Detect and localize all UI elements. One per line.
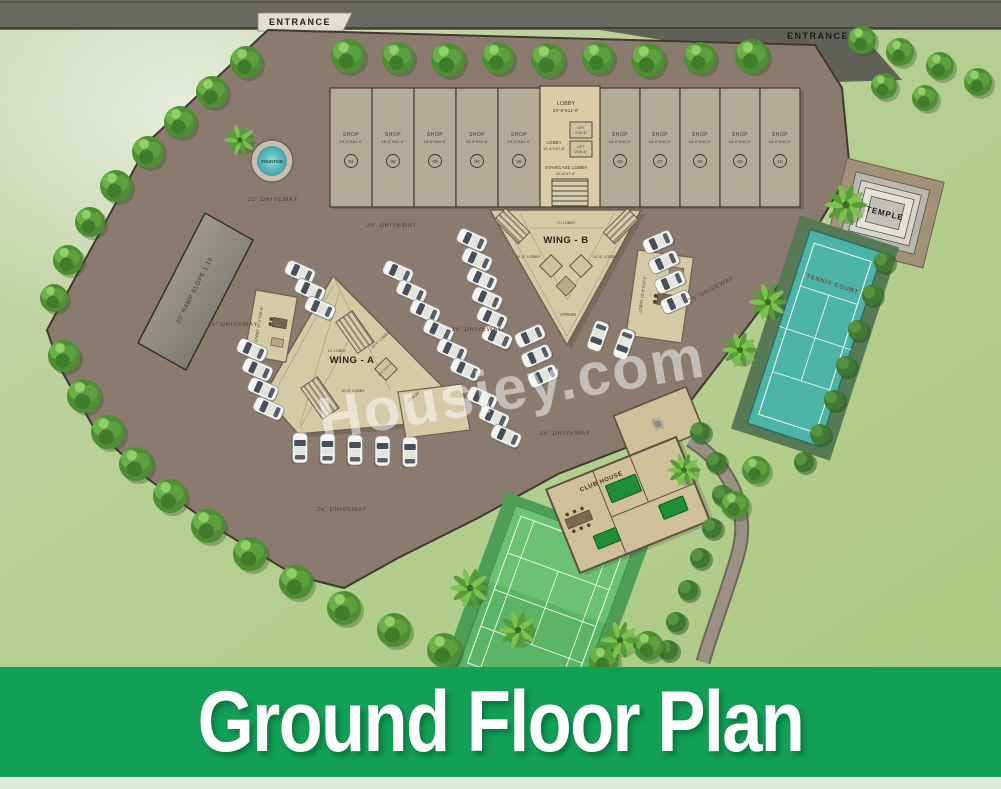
shop-label: SHOP	[427, 132, 443, 138]
shop-unit: SHOP15'-0"X40'-0"10	[760, 88, 800, 207]
lift2-size: 8'X6'-6"	[575, 150, 587, 154]
shop-label: SHOP	[612, 132, 628, 138]
banner-bottom-strip	[0, 777, 1001, 789]
shop-number: 01	[348, 159, 354, 165]
staircase-lobby-label: STAIRCASE LOBBY	[545, 165, 587, 170]
shop-number: 02	[390, 159, 396, 165]
shop-size: 15'-0"X40'-0"	[728, 139, 752, 144]
shop-label: SHOP	[385, 132, 401, 138]
entrance-left: ENTRANCE	[258, 13, 352, 31]
wing-b-to-lobby: TO LOBBY	[557, 221, 576, 225]
shop-number: 06	[617, 159, 623, 165]
driveway-label: 25' DRIVEWAY	[452, 327, 502, 333]
shop-number: 08	[697, 159, 703, 165]
driveway-label: 25' DRIVEWAY	[317, 507, 367, 513]
shop-unit: SHOP15'-0"X40'-0"05	[498, 88, 540, 207]
shop-size: 15'-0"X40'-0"	[381, 139, 405, 144]
shop-size: 15'-0"X40'-0"	[339, 139, 363, 144]
lift1-size: 8'X6'-6"	[575, 131, 587, 135]
shop-label: SHOP	[343, 132, 359, 138]
shop-unit: SHOP15'-0"X40'-0"07	[640, 88, 680, 207]
shop-number: 10	[777, 159, 783, 165]
shop-unit: SHOP15'-0"X40'-0"02	[372, 88, 414, 207]
wing-a-name: WING - A	[330, 355, 375, 366]
shop-unit: SHOP15'-0"X40'-0"09	[720, 88, 760, 207]
car-icon	[292, 433, 308, 464]
shop-label: SHOP	[469, 132, 485, 138]
driveway-label: 25' DRIVEWAY	[208, 322, 258, 328]
shop-size: 15'-0"X40'-0"	[423, 139, 447, 144]
title-banner: Ground Floor Plan	[0, 667, 1001, 777]
table	[272, 317, 287, 328]
lobby-top-size: 20'-6"X11'-0"	[553, 108, 579, 113]
lobby-core: LOBBY 20'-6"X11'-0" LIFT 8'X6'-6" LIFT 8…	[540, 86, 600, 207]
shop-unit: SHOP15'-0"X40'-0"03	[414, 88, 456, 207]
entrance-left-label: ENTRANCE	[269, 17, 331, 27]
wing-b-lobby-left: 10'-6" LOBBY	[516, 254, 541, 259]
shop-label: SHOP	[652, 132, 668, 138]
shop-number: 04	[474, 159, 480, 165]
site-plan: ENTRANCE ENTRANCE 20' RAMP SLOPE 1:10 FO…	[0, 0, 1001, 667]
shop-size: 15'-0"X40'-0"	[648, 139, 672, 144]
shop-unit: SHOP15'-0"X40'-0"04	[456, 88, 498, 207]
shop-unit: SHOP15'-0"X40'-0"01	[330, 88, 372, 207]
entrance-right-label: ENTRANCE	[787, 31, 849, 41]
shops-row: SHOP15'-0"X40'-0"01SHOP15'-0"X40'-0"02SH…	[330, 86, 804, 209]
wing-a-lobby1: 10' LOBBY	[328, 349, 347, 353]
ground-floor-plan-image: ENTRANCE ENTRANCE 20' RAMP SLOPE 1:10 FO…	[0, 0, 1001, 789]
shop-number: 03	[432, 159, 438, 165]
lobby-mid-size: 12'-4"X10'-6"	[543, 147, 566, 151]
shop-number: 05	[516, 159, 522, 165]
driveway-label: 25' DRIVEWAY	[367, 223, 417, 229]
lobby-top-label: LOBBY	[557, 101, 576, 107]
shop-size: 15'-0"X40'-0"	[608, 139, 632, 144]
lobby-mid-label: LOBBY	[546, 140, 561, 145]
driveway-label: 25' DRIVEWAY	[540, 431, 590, 437]
shop-size: 15'-0"X40'-0"	[688, 139, 712, 144]
fountain-label: FOUNTAIN	[261, 159, 282, 164]
shop-size: 15'-0"X40'-0"	[465, 139, 489, 144]
lift2-label: LIFT	[577, 145, 585, 149]
shop-unit: SHOP15'-0"X40'-0"08	[680, 88, 720, 207]
shop-unit: SHOP15'-0"X40'-0"06	[600, 88, 640, 207]
staircase-lobby-size: 20'-6"X7'-4"	[556, 172, 576, 176]
wing-b-name: WING - B	[543, 235, 588, 246]
shop-size: 15'-0"X40'-0"	[507, 139, 531, 144]
shop-label: SHOP	[511, 132, 527, 138]
wing-b-lobby-right: 10'-6" LOBBY	[593, 254, 618, 259]
shop-label: SHOP	[692, 132, 708, 138]
fountain: FOUNTAIN	[251, 140, 293, 182]
staircase	[552, 179, 588, 206]
lift1-label: LIFT	[577, 126, 585, 130]
shop-label: SHOP	[772, 132, 788, 138]
driveway-label: 25' DRIVEWAY	[248, 197, 298, 203]
shop-number: 07	[657, 159, 663, 165]
car-icon	[402, 437, 418, 468]
shop-label: SHOP	[732, 132, 748, 138]
wing-b-atrium: ATRIUM	[560, 312, 576, 317]
shop-number: 09	[737, 159, 743, 165]
shop-size: 15'-0"X40'-0"	[768, 139, 792, 144]
page-title: Ground Floor Plan	[198, 673, 804, 772]
